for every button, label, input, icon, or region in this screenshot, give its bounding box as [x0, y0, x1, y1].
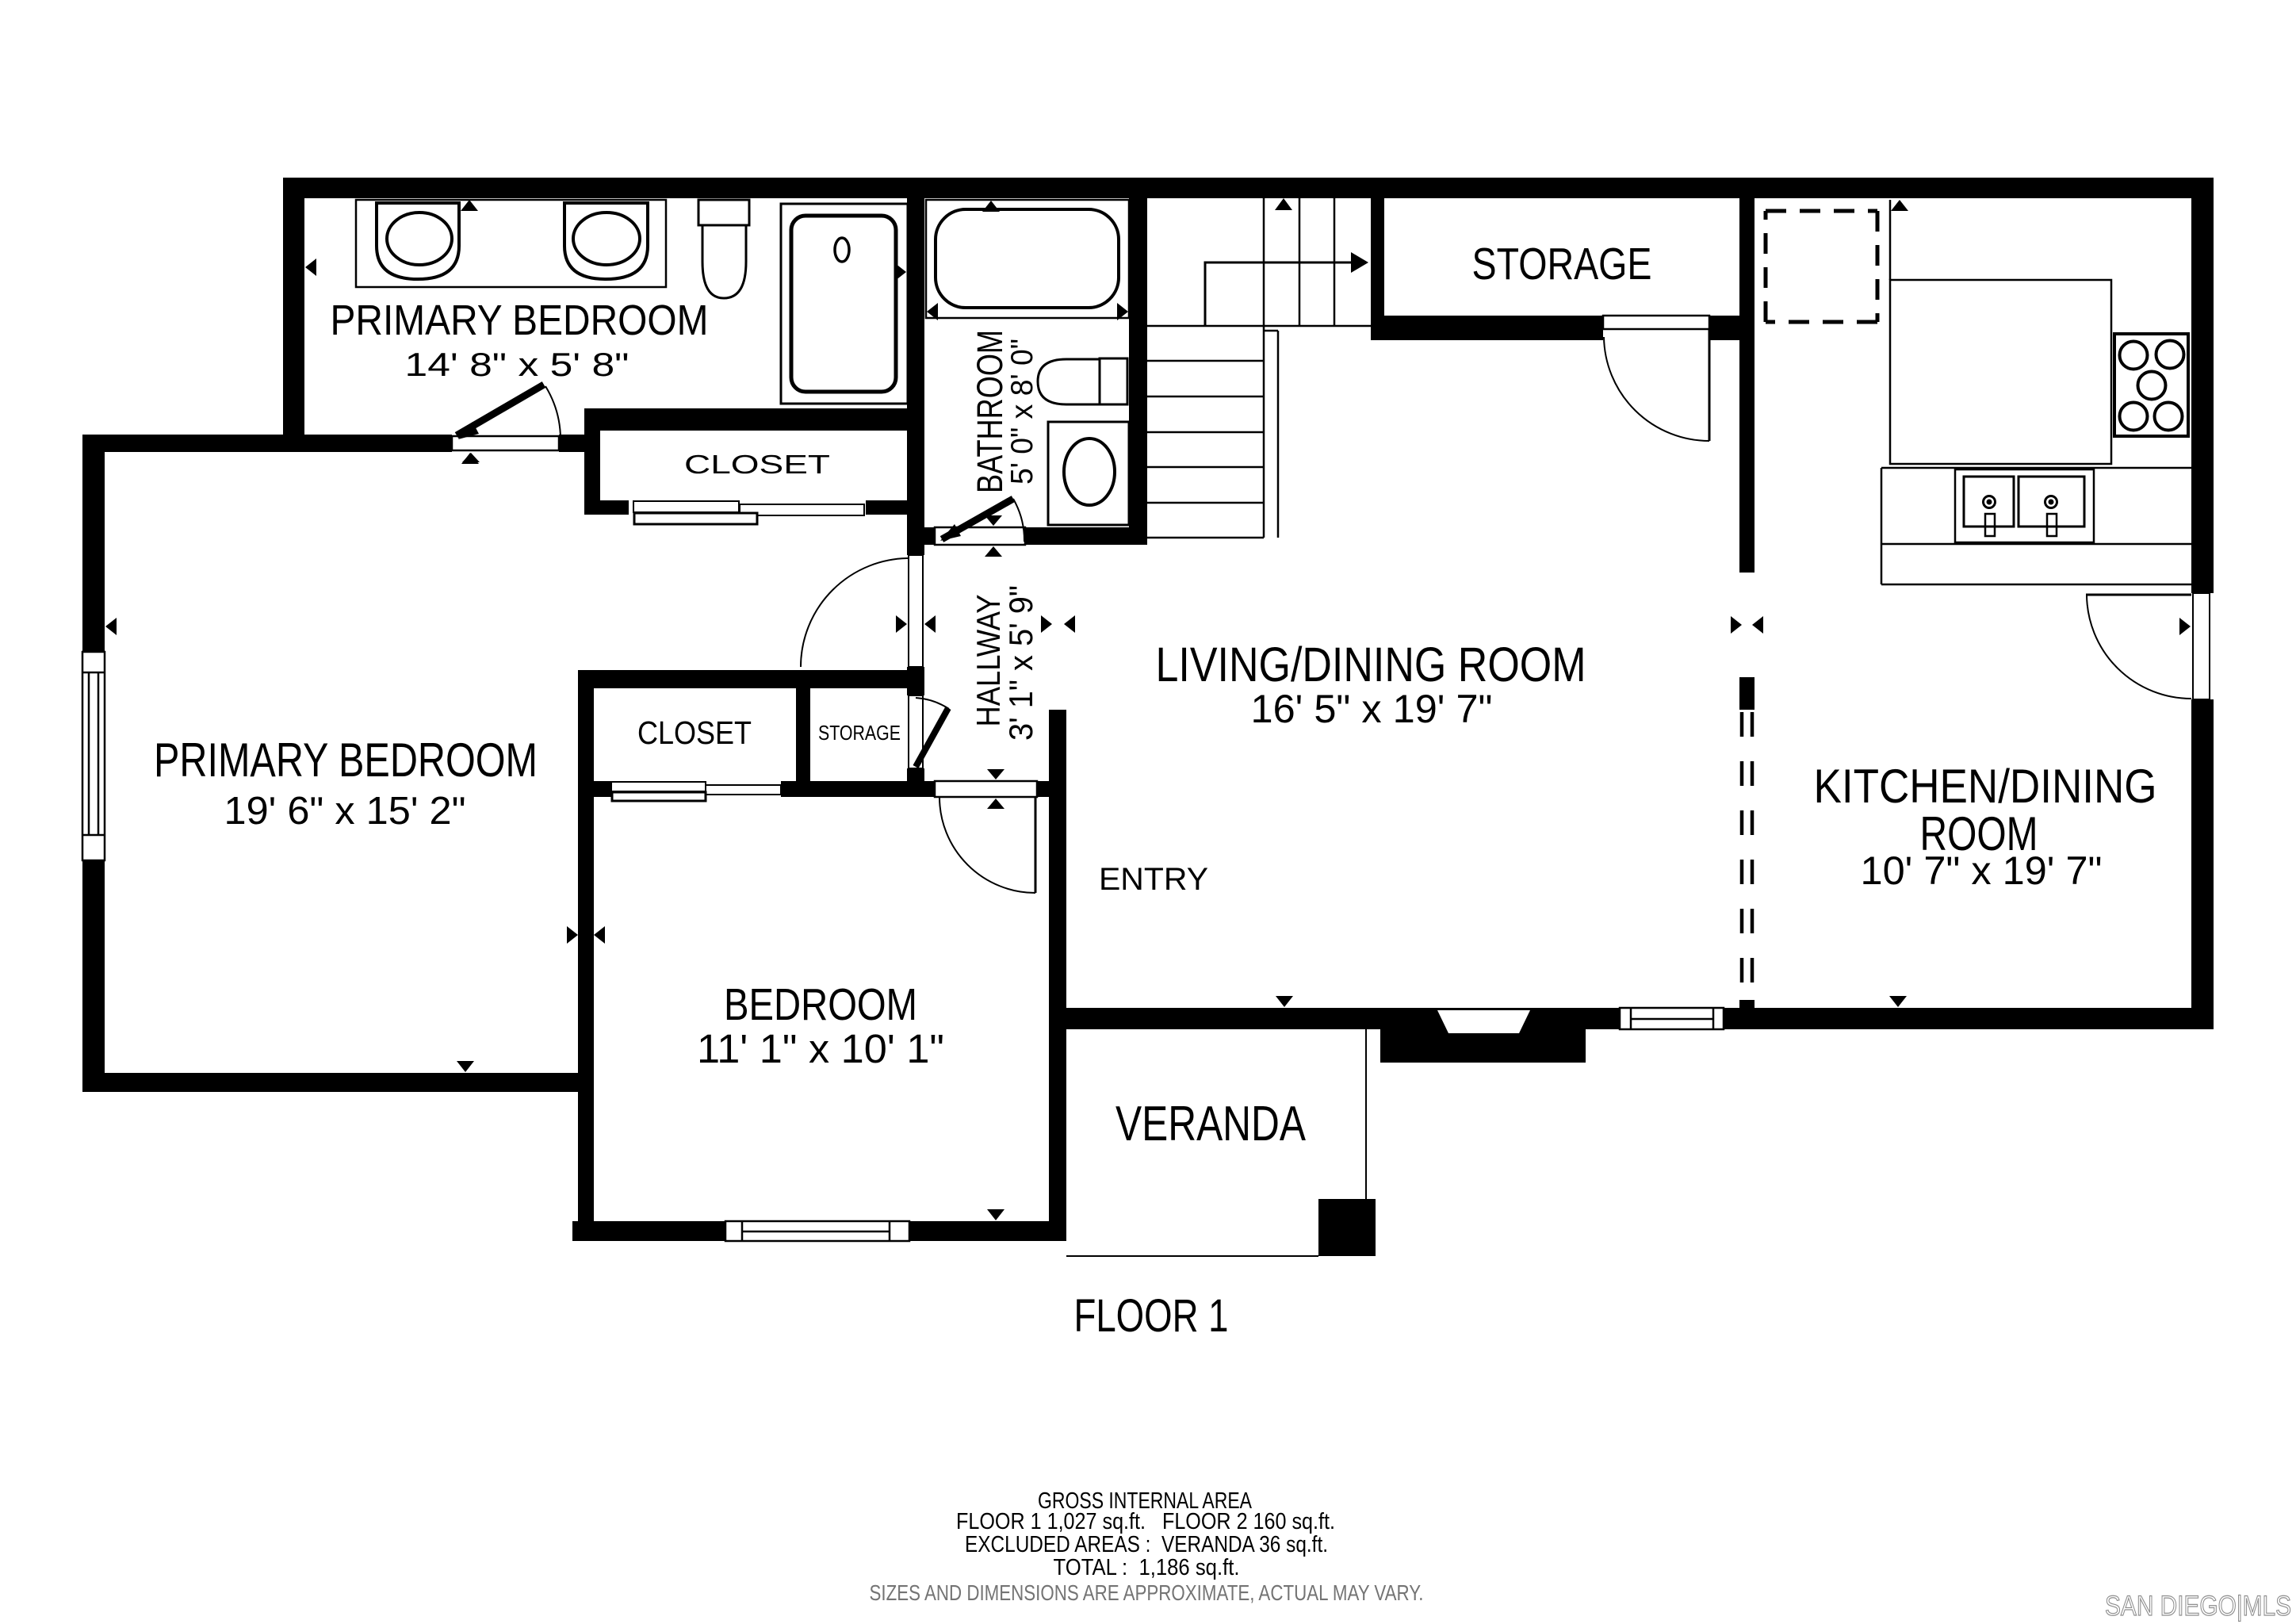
svg-text:FLOOR 1: FLOOR 1: [1074, 1290, 1229, 1342]
svg-text:STORAGE: STORAGE: [818, 721, 901, 745]
svg-text:CLOSET: CLOSET: [684, 450, 830, 479]
svg-text:11' 1" x 10' 1": 11' 1" x 10' 1": [697, 1026, 944, 1071]
svg-text:STORAGE: STORAGE: [1472, 239, 1652, 289]
svg-text:BATHROOM: BATHROOM: [970, 330, 1010, 493]
svg-text:LIVING/DINING ROOM: LIVING/DINING ROOM: [1156, 638, 1586, 691]
svg-text:CLOSET: CLOSET: [637, 714, 752, 751]
svg-text:KITCHEN/DINING: KITCHEN/DINING: [1814, 760, 2157, 813]
svg-text:EXCLUDED AREAS : VERANDA 36 s: EXCLUDED AREAS : VERANDA 36 sq.ft.: [965, 1532, 1328, 1557]
svg-text:SAN DIEGO|MLS: SAN DIEGO|MLS: [2105, 1591, 2291, 1622]
svg-text:BEDROOM: BEDROOM: [724, 979, 917, 1030]
svg-text:16' 5" x 19' 7": 16' 5" x 19' 7": [1251, 687, 1493, 731]
svg-text:10' 7" x 19' 7": 10' 7" x 19' 7": [1861, 848, 2103, 893]
svg-text:HALLWAY: HALLWAY: [970, 595, 1007, 727]
svg-text:FLOOR 1 1,027 sq.ft. FLOOR 2: FLOOR 1 1,027 sq.ft. FLOOR 2 160 sq.ft.: [956, 1509, 1335, 1534]
svg-text:5' 0" x 8' 0": 5' 0" x 8' 0": [1005, 339, 1039, 485]
svg-text:PRIMARY BEDROOM: PRIMARY BEDROOM: [331, 297, 709, 344]
svg-text:SIZES AND DIMENSIONS ARE APPRO: SIZES AND DIMENSIONS ARE APPROXIMATE, AC…: [870, 1580, 1424, 1605]
svg-text:ENTRY: ENTRY: [1099, 862, 1208, 897]
svg-text:19' 6" x 15' 2": 19' 6" x 15' 2": [224, 790, 466, 833]
svg-text:TOTAL : 1,186 sq.ft.: TOTAL : 1,186 sq.ft.: [1054, 1555, 1240, 1580]
svg-text:3' 1" x 5' 9": 3' 1" x 5' 9": [1002, 585, 1039, 741]
svg-text:PRIMARY BEDROOM: PRIMARY BEDROOM: [154, 733, 538, 787]
svg-text:VERANDA: VERANDA: [1115, 1097, 1307, 1151]
svg-text:14' 8" x 5' 8": 14' 8" x 5' 8": [405, 346, 629, 383]
